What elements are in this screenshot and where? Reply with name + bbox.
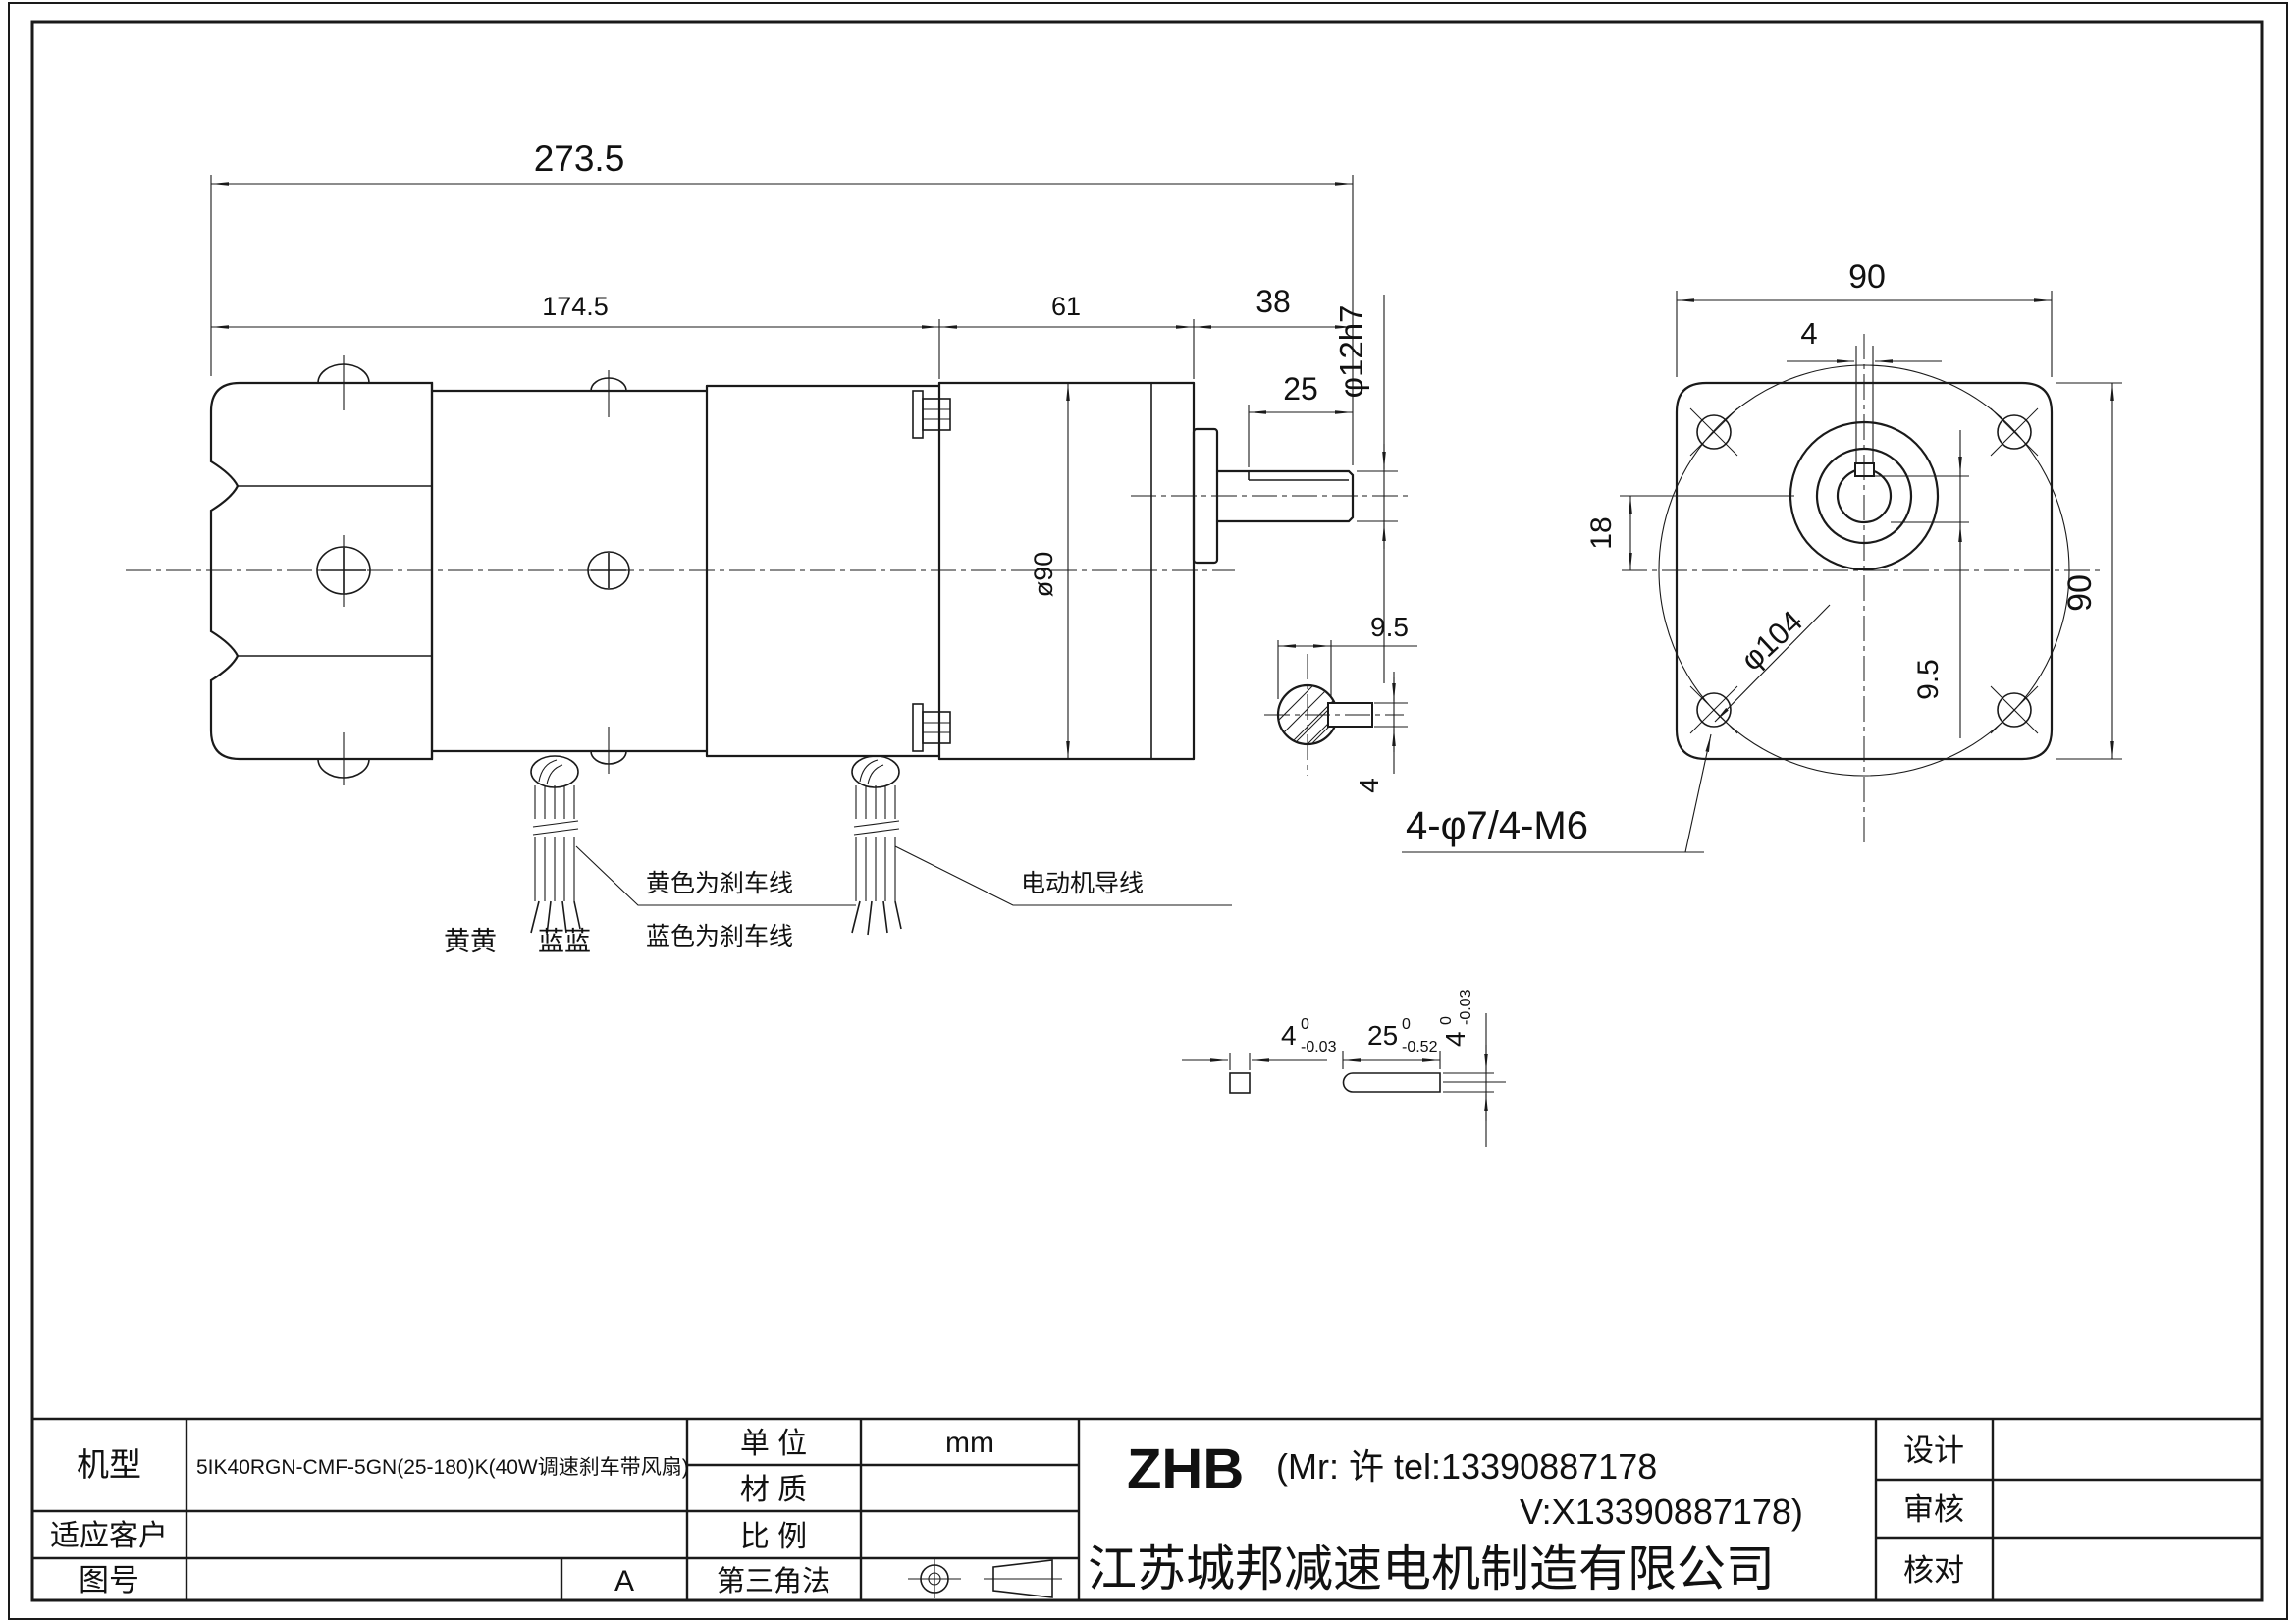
dim-shaft-length: 38: [1255, 284, 1291, 319]
wire-labels: 黄色为刹车线 蓝色为刹车线 黄黄 蓝蓝 电动机导线: [444, 846, 1232, 956]
dim-key-height-tol-hi: 0: [1438, 1016, 1455, 1025]
drawing-sheet: 黄色为刹车线 蓝色为刹车线 黄黄 蓝蓝 电动机导线 273.5 174.5 61…: [0, 0, 2296, 1623]
mount-hole: [1690, 686, 1737, 733]
engineering-drawing: 黄色为刹车线 蓝色为刹车线 黄黄 蓝蓝 电动机导线 273.5 174.5 61…: [0, 0, 2296, 1623]
scale-label: 比 例: [740, 1521, 807, 1553]
dim-key-height: 4: [1440, 1031, 1470, 1047]
dim-key-width-tol-hi: 0: [1301, 1016, 1309, 1033]
dim-keyway-length: 25: [1283, 371, 1318, 406]
drawing-no-label: 图号: [79, 1563, 139, 1597]
key-end-section: [1230, 1073, 1250, 1093]
end-view-dimensions: 90 4 18 9.5 90: [1402, 258, 2122, 852]
revision-value: A: [614, 1565, 634, 1597]
key-dimensions: 4 0 -0.03 25 0 -0.52 4 0 -0.03: [1182, 989, 1494, 1147]
motor-wire-bundle: [852, 756, 901, 935]
unit-label: 单 位: [740, 1428, 807, 1460]
dim-key-width: 4: [1281, 1020, 1297, 1051]
dim-shaft-offset: 18: [1585, 516, 1618, 549]
label-blue-pair: 蓝蓝: [538, 927, 591, 956]
contact-line1: (Mr: 许 tel:13390887178: [1276, 1446, 1657, 1487]
dim-key-height-tol-lo: -0.03: [1458, 989, 1474, 1025]
mount-hole: [1690, 408, 1737, 456]
title-block: 机型 5IK40RGN-CMF-5GN(25-180)K(40W调速刹车带风扇)…: [32, 1419, 2262, 1600]
dim-key-length: 25: [1367, 1020, 1398, 1051]
company-name: 江苏城邦减速电机制造有限公司: [1088, 1542, 1775, 1596]
reviewer-label: 审核: [1903, 1492, 1964, 1527]
unit-value: mm: [945, 1427, 994, 1459]
outer-border: [9, 3, 2287, 1619]
mount-hole: [1991, 686, 2038, 733]
hex-bolt-bottom: [913, 704, 950, 751]
dim-section-width: 9.5: [1370, 612, 1409, 642]
label-motor-lead: 电动机导线: [1021, 870, 1144, 897]
third-angle-symbol: [908, 1559, 1062, 1598]
label-blue-brake: 蓝色为刹车线: [646, 923, 793, 950]
dim-keyway-width: 4: [1800, 316, 1817, 351]
dim-shaft-diameter: φ12h7: [1333, 305, 1369, 399]
dim-motor-length: 174.5: [542, 292, 609, 321]
dim-keyway-depth: 9.5: [1912, 659, 1945, 700]
customer-label: 适应客户: [50, 1520, 168, 1552]
dim-section-height: 4: [1354, 778, 1384, 793]
material-label: 材 质: [740, 1474, 807, 1506]
inner-frame: [32, 22, 2262, 1600]
dim-flange-width: 90: [1848, 258, 1886, 296]
dim-total-length: 273.5: [534, 138, 625, 179]
hex-bolt-top: [913, 391, 950, 438]
label-yellow-pair: 黄黄: [444, 927, 497, 956]
shaft-section-detail: 9.5 4: [1219, 612, 1417, 793]
dim-key-length-tol-hi: 0: [1402, 1016, 1411, 1033]
dim-key-width-tol-lo: -0.03: [1301, 1039, 1337, 1055]
model-label: 机型: [77, 1446, 141, 1483]
designer-label: 设计: [1903, 1434, 1964, 1468]
contact-line2: V:X13390887178): [1520, 1491, 1803, 1532]
dim-body-diameter: ø90: [1029, 552, 1058, 598]
mount-hole-note: 4-φ7/4-M6: [1406, 804, 1588, 847]
dim-gearbox-length: 61: [1051, 292, 1081, 321]
dim-key-length-tol-lo: -0.52: [1402, 1039, 1438, 1055]
label-yellow-brake: 黄色为刹车线: [646, 870, 793, 897]
mount-hole: [1991, 408, 2038, 456]
key-detail: 4 0 -0.03 25 0 -0.52 4 0 -0.03: [1182, 989, 1506, 1147]
checker-label: 核对: [1903, 1553, 1964, 1588]
dim-bolt-circle: φ104: [1735, 604, 1809, 677]
model-value: 5IK40RGN-CMF-5GN(25-180)K(40W调速刹车带风扇): [196, 1456, 689, 1479]
brand-logo: ZHB: [1127, 1437, 1244, 1501]
side-view: 黄色为刹车线 蓝色为刹车线 黄黄 蓝蓝 电动机导线 273.5 174.5 61…: [126, 138, 1410, 956]
projection-label: 第三角法: [717, 1565, 830, 1597]
end-view: 90 4 18 9.5 90: [1402, 258, 2122, 852]
dim-flange-height: 90: [2061, 574, 2099, 612]
screw-stator-top: [591, 370, 626, 417]
side-view-dimensions: 273.5 174.5 61 38 25 φ12h7 ø90: [211, 138, 1398, 759]
brake-wire-bundle: [531, 756, 580, 935]
key-side-profile: [1344, 1073, 1441, 1092]
